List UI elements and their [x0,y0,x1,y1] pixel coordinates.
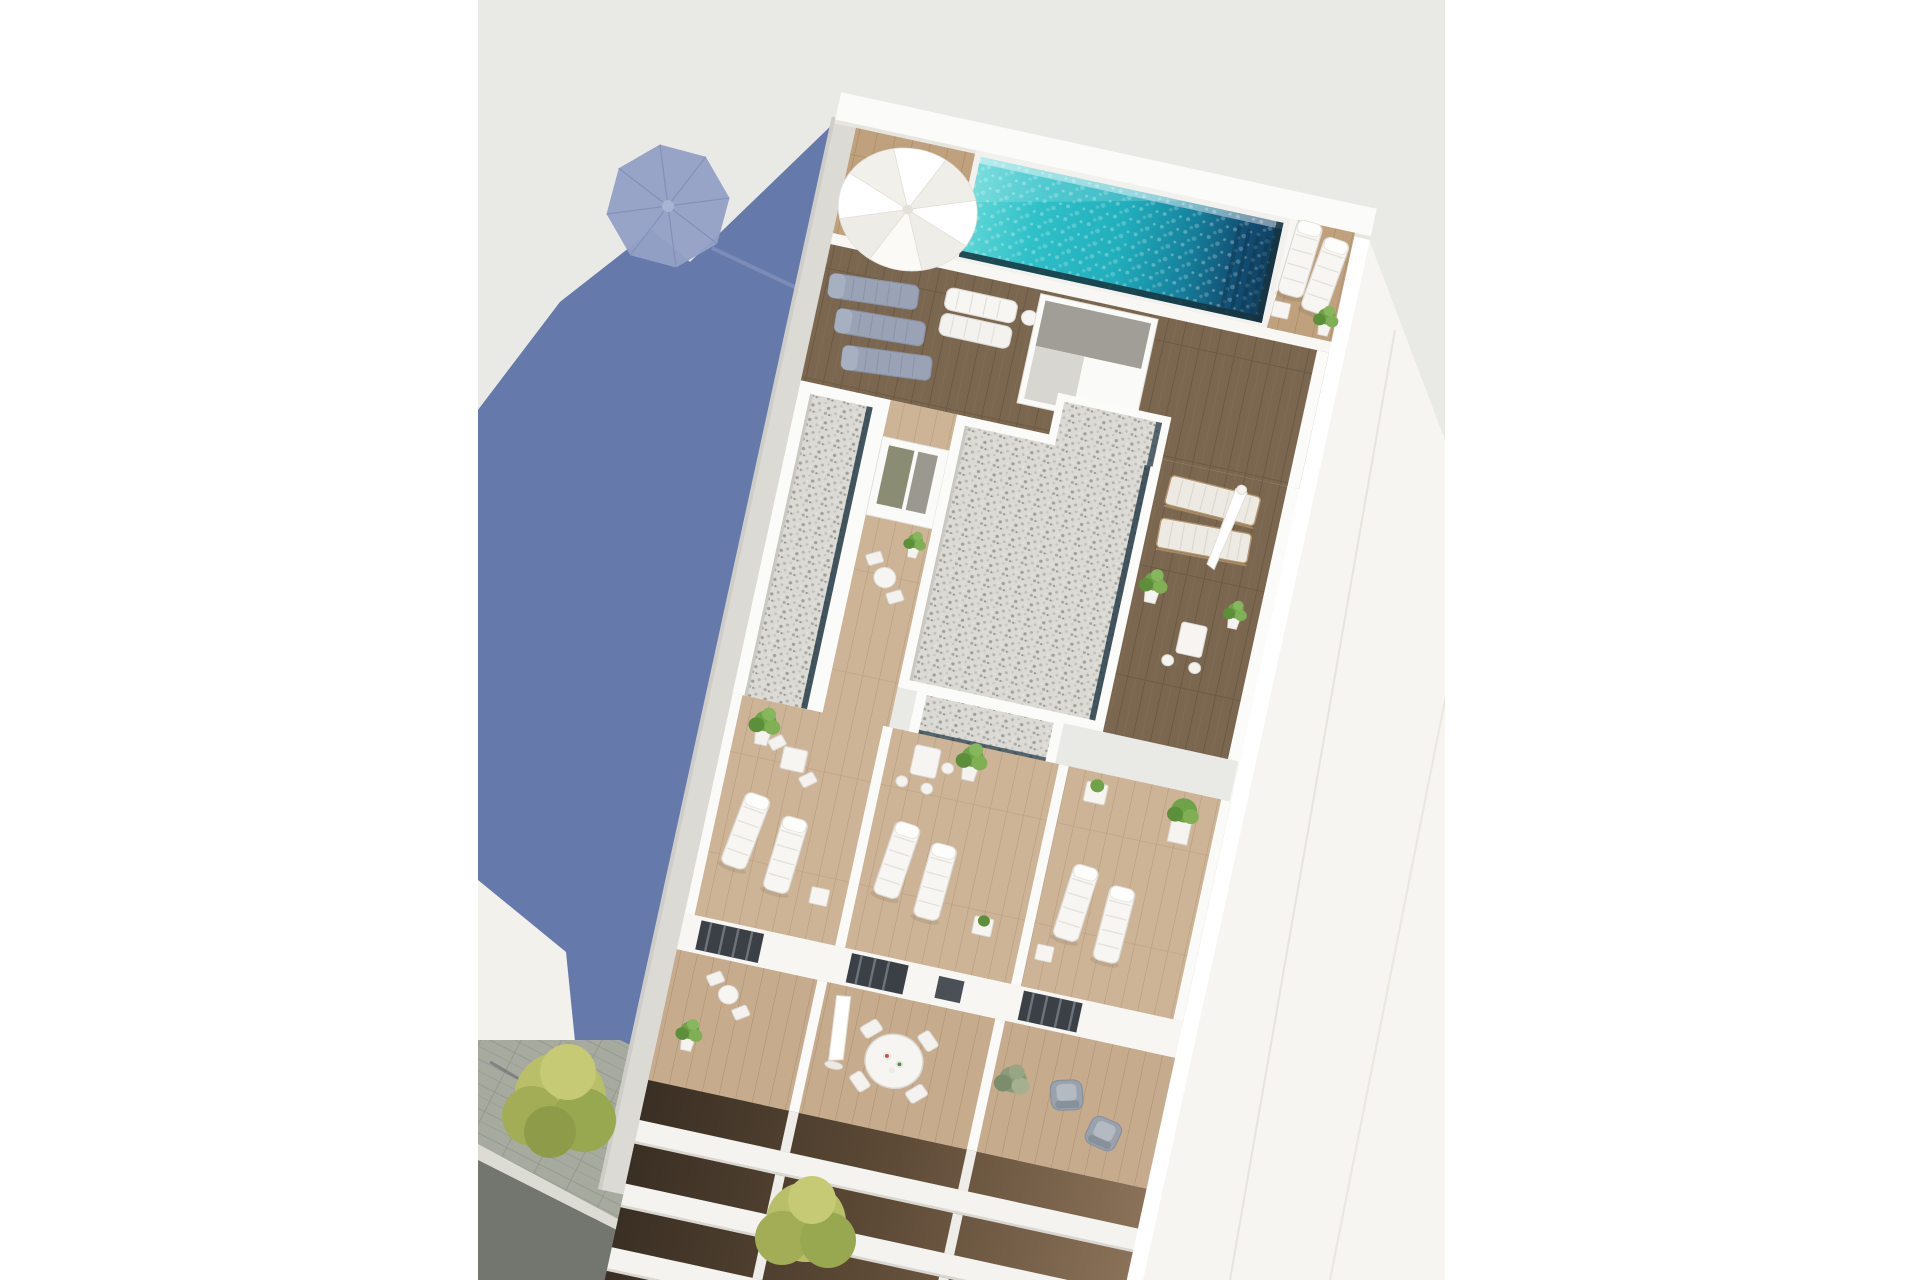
render-area [478,0,1445,1280]
side-table [809,886,830,906]
building-aerial-render [478,0,1445,1280]
table [780,746,808,773]
armchair [1050,1080,1084,1111]
side-table [1035,944,1055,963]
side-table [1271,300,1291,319]
